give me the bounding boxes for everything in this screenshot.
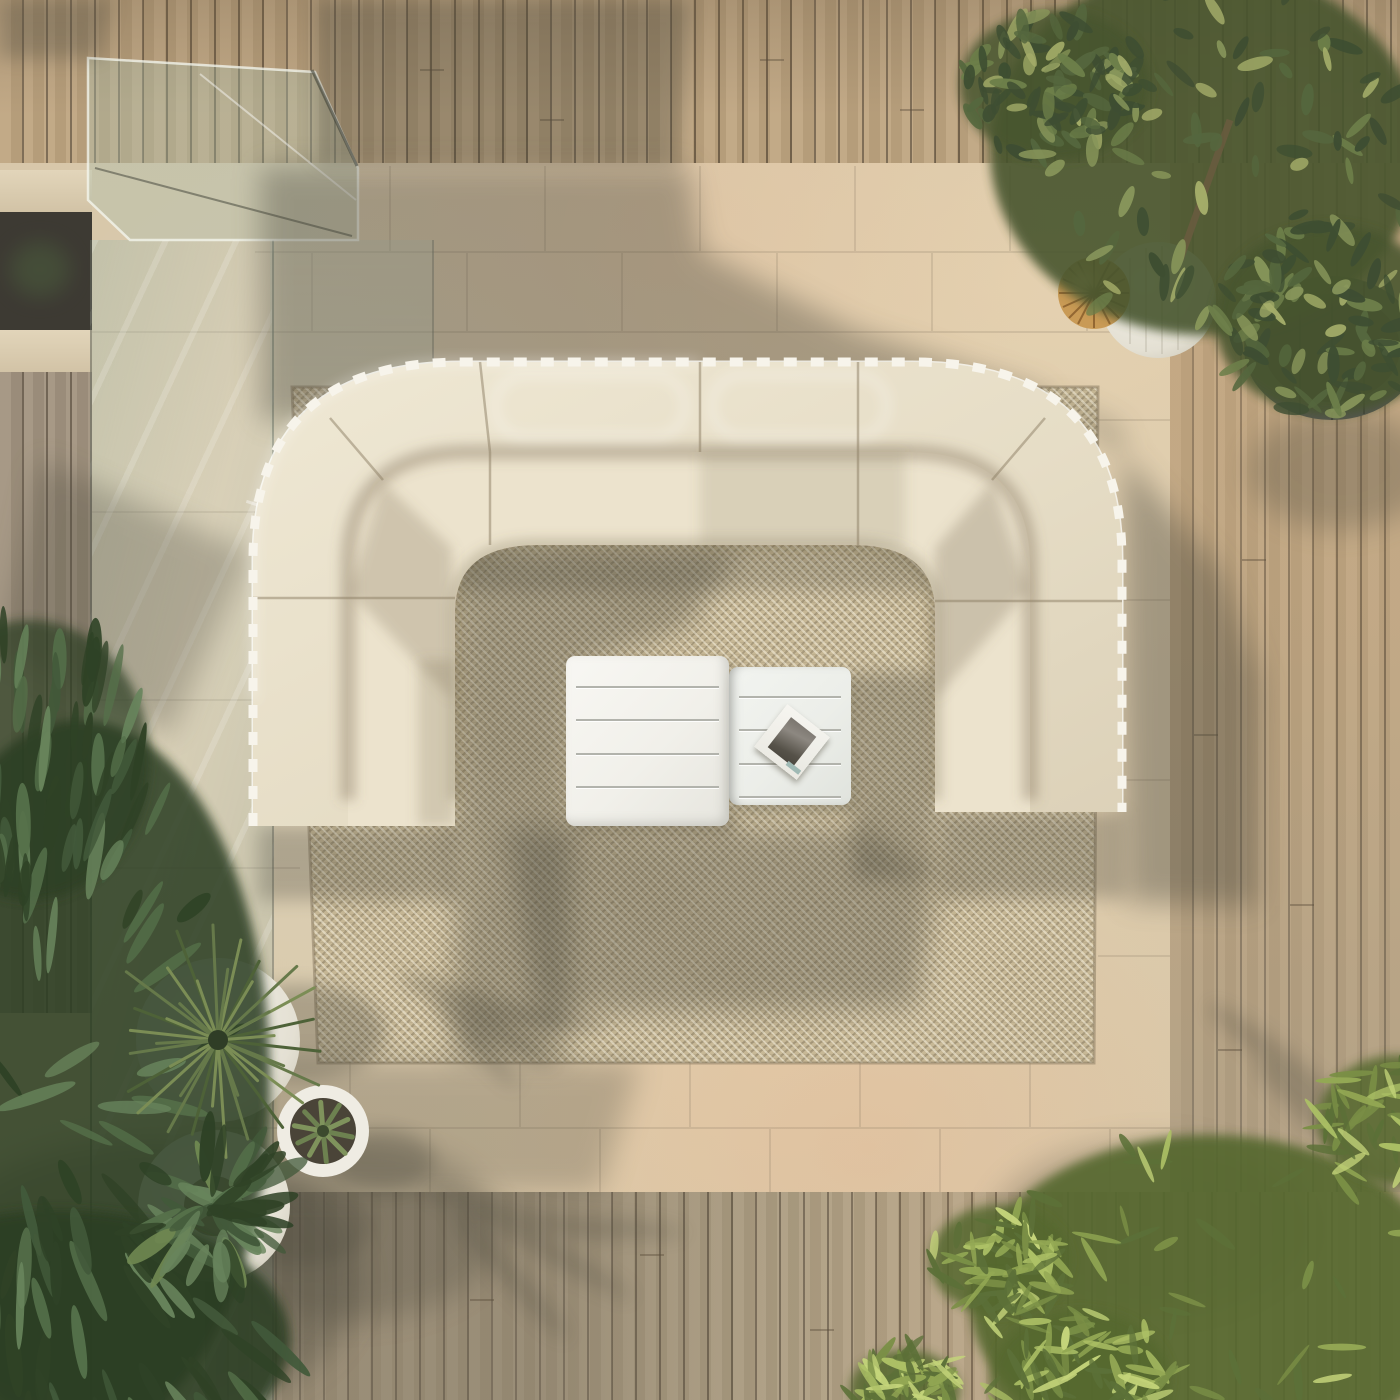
plants-layer bbox=[0, 0, 1400, 1400]
patio-aerial-photo bbox=[0, 0, 1400, 1400]
pine-tree-canopy bbox=[838, 1054, 1400, 1400]
olive-tree-canopy bbox=[957, 0, 1400, 419]
